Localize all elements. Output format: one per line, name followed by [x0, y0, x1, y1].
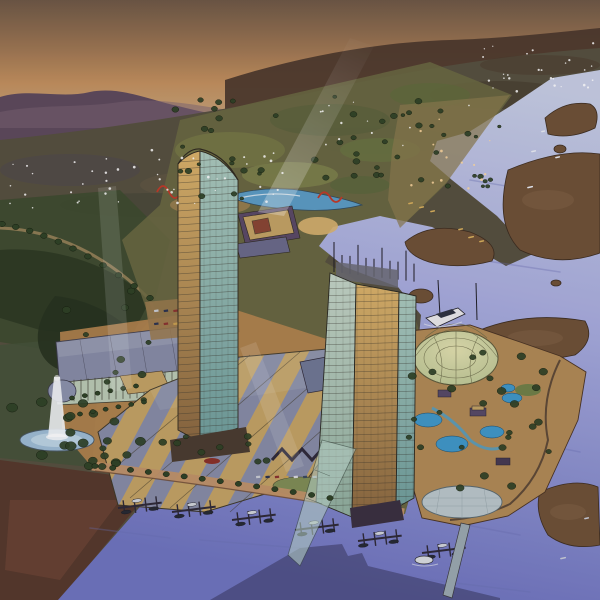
rendering-canvas: Aerial watercolor rendering of a waterfr…: [0, 0, 600, 600]
paper-wash: [0, 0, 600, 600]
aerial-resort-rendering: Aerial watercolor rendering of a waterfr…: [0, 0, 600, 600]
